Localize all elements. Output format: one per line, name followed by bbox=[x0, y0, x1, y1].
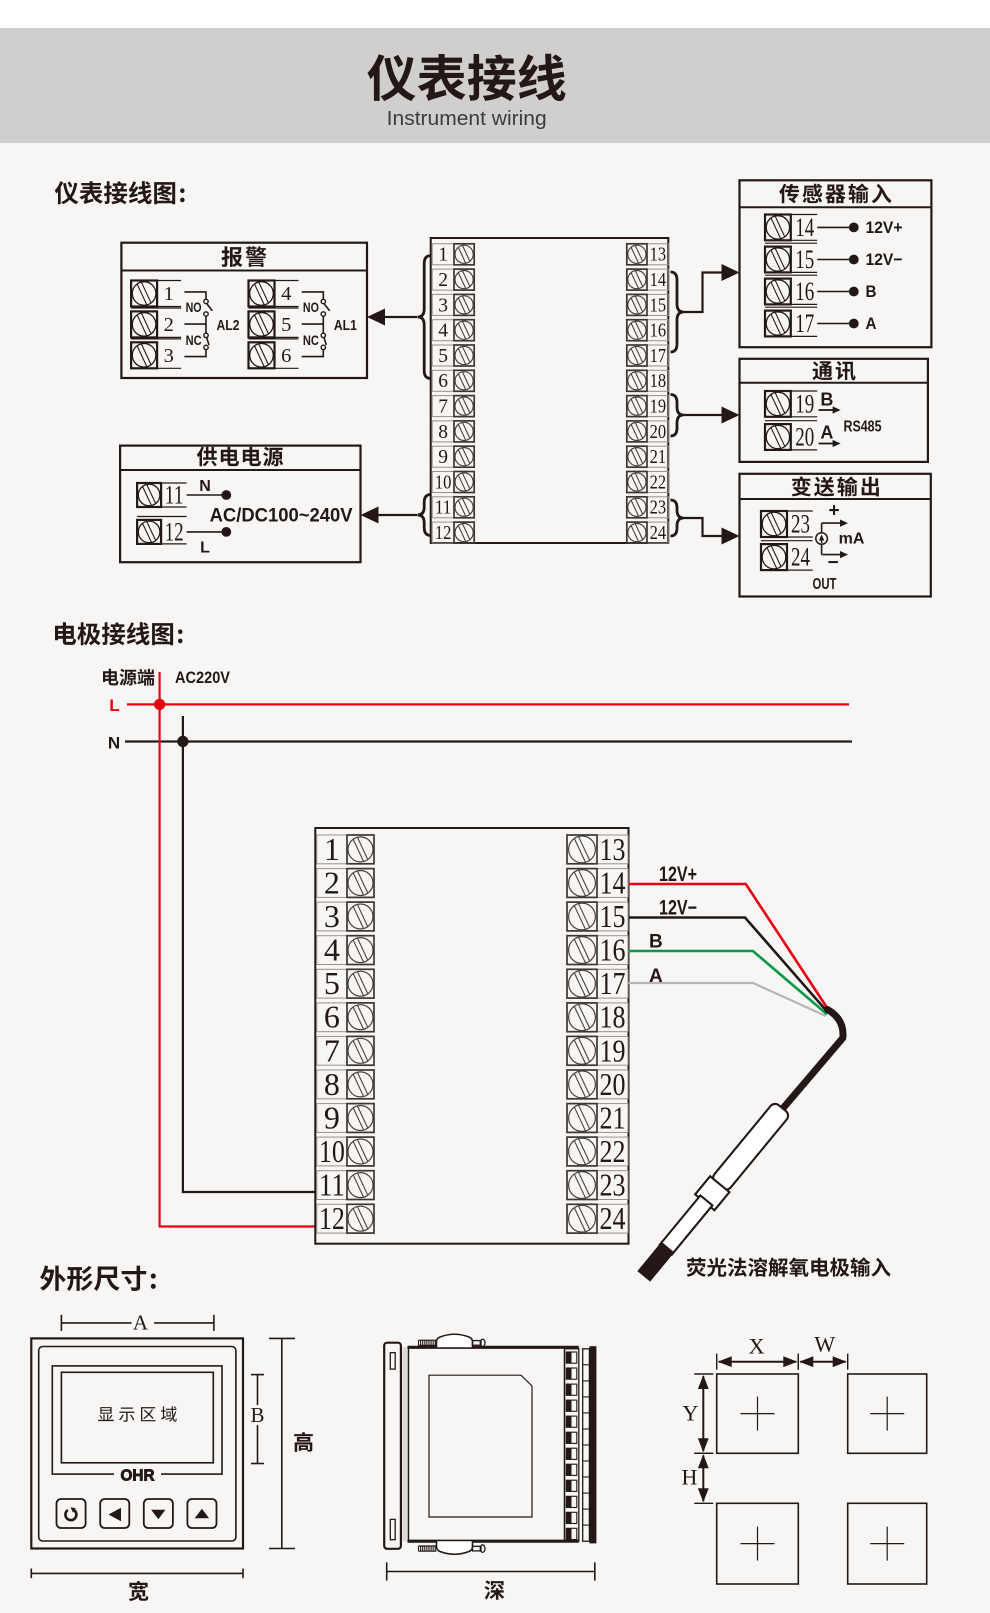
svg-text:20: 20 bbox=[795, 423, 814, 452]
svg-text:2: 2 bbox=[164, 314, 174, 336]
svg-text:6: 6 bbox=[281, 345, 291, 367]
svg-text:6: 6 bbox=[438, 371, 448, 392]
svg-text:AC220V: AC220V bbox=[175, 669, 230, 687]
svg-text:22: 22 bbox=[650, 472, 667, 493]
svg-text:A: A bbox=[820, 423, 833, 443]
svg-text:OHR: OHR bbox=[121, 1468, 155, 1485]
svg-text:2: 2 bbox=[324, 864, 340, 900]
svg-text:23: 23 bbox=[600, 1167, 626, 1203]
svg-text:1: 1 bbox=[438, 245, 448, 266]
svg-text:23: 23 bbox=[650, 498, 667, 519]
svg-text:2: 2 bbox=[438, 270, 448, 291]
svg-text:1: 1 bbox=[164, 283, 174, 305]
svg-text:3: 3 bbox=[438, 295, 448, 316]
svg-text:L: L bbox=[109, 696, 119, 715]
svg-text:mA: mA bbox=[839, 531, 865, 548]
svg-text:14: 14 bbox=[795, 213, 814, 242]
svg-text:5: 5 bbox=[324, 965, 340, 1001]
svg-text:17: 17 bbox=[650, 346, 667, 367]
svg-text:B: B bbox=[866, 282, 877, 301]
svg-text:12V+: 12V+ bbox=[659, 863, 697, 886]
svg-text:4: 4 bbox=[324, 932, 340, 968]
svg-text:11: 11 bbox=[319, 1167, 345, 1203]
svg-text:NO: NO bbox=[303, 300, 319, 315]
svg-text:Instrument wiring: Instrument wiring bbox=[387, 108, 547, 130]
svg-text:11: 11 bbox=[165, 481, 184, 510]
svg-text:22: 22 bbox=[600, 1133, 626, 1169]
svg-text:A: A bbox=[133, 1311, 149, 1335]
svg-text:15: 15 bbox=[600, 898, 626, 934]
svg-text:9: 9 bbox=[438, 447, 448, 468]
svg-text:N: N bbox=[108, 734, 120, 753]
svg-text:12V−: 12V− bbox=[659, 897, 697, 920]
svg-text:19: 19 bbox=[600, 1032, 626, 1068]
svg-text:13: 13 bbox=[650, 245, 667, 266]
svg-text:12: 12 bbox=[319, 1200, 345, 1236]
svg-text:NC: NC bbox=[186, 333, 202, 348]
svg-text:19: 19 bbox=[650, 397, 667, 418]
svg-text:A: A bbox=[649, 966, 663, 987]
svg-text:7: 7 bbox=[438, 397, 448, 418]
svg-text:6: 6 bbox=[324, 999, 340, 1035]
svg-text:L: L bbox=[200, 540, 210, 557]
svg-text:12V+: 12V+ bbox=[866, 218, 903, 237]
svg-text:N: N bbox=[199, 478, 211, 495]
svg-text:−: − bbox=[827, 553, 838, 574]
svg-text:18: 18 bbox=[600, 999, 626, 1035]
svg-text:12V−: 12V− bbox=[866, 250, 903, 269]
svg-text:B: B bbox=[820, 390, 833, 410]
svg-text:20: 20 bbox=[650, 422, 667, 443]
svg-text:12: 12 bbox=[435, 523, 452, 544]
svg-text:Y: Y bbox=[683, 1401, 699, 1426]
svg-text:NO: NO bbox=[186, 300, 202, 315]
svg-text:24: 24 bbox=[650, 523, 667, 544]
svg-text:19: 19 bbox=[795, 389, 814, 418]
svg-text:17: 17 bbox=[795, 309, 814, 338]
svg-text:RS485: RS485 bbox=[844, 419, 882, 436]
svg-text:21: 21 bbox=[600, 1099, 626, 1135]
svg-text:AL1: AL1 bbox=[334, 318, 357, 334]
svg-text:16: 16 bbox=[650, 321, 667, 342]
svg-text:21: 21 bbox=[650, 447, 667, 468]
svg-text:4: 4 bbox=[438, 321, 448, 342]
svg-text:OUT: OUT bbox=[813, 576, 837, 593]
svg-text:12: 12 bbox=[165, 517, 184, 546]
svg-text:10: 10 bbox=[435, 472, 452, 493]
svg-text:4: 4 bbox=[281, 283, 291, 305]
svg-text:3: 3 bbox=[164, 345, 174, 367]
svg-text:9: 9 bbox=[324, 1099, 340, 1135]
svg-text:8: 8 bbox=[438, 422, 448, 443]
svg-text:20: 20 bbox=[600, 1066, 626, 1102]
svg-text:B: B bbox=[649, 932, 663, 953]
svg-text:14: 14 bbox=[600, 864, 626, 900]
svg-text:13: 13 bbox=[600, 831, 626, 867]
svg-text:B: B bbox=[250, 1403, 264, 1427]
svg-text:5: 5 bbox=[438, 346, 448, 367]
svg-text:18: 18 bbox=[650, 371, 667, 392]
svg-text:A: A bbox=[866, 314, 877, 333]
svg-text:23: 23 bbox=[791, 510, 810, 539]
svg-text:15: 15 bbox=[650, 295, 667, 316]
svg-text:1: 1 bbox=[324, 831, 340, 867]
svg-text:8: 8 bbox=[324, 1066, 340, 1102]
svg-text:X: X bbox=[749, 1333, 765, 1358]
svg-text:24: 24 bbox=[791, 543, 810, 572]
svg-text:24: 24 bbox=[600, 1200, 626, 1236]
svg-text:7: 7 bbox=[324, 1032, 340, 1068]
svg-text:AC/DC100~240V: AC/DC100~240V bbox=[210, 506, 353, 527]
svg-text:17: 17 bbox=[600, 965, 626, 1001]
svg-text:5: 5 bbox=[281, 314, 291, 336]
svg-text:3: 3 bbox=[324, 898, 340, 934]
svg-text:AL2: AL2 bbox=[217, 318, 240, 334]
svg-text:11: 11 bbox=[435, 498, 452, 519]
svg-text:16: 16 bbox=[795, 277, 814, 306]
svg-text:10: 10 bbox=[319, 1133, 345, 1169]
svg-text:16: 16 bbox=[600, 932, 626, 968]
svg-text:NC: NC bbox=[303, 333, 319, 348]
svg-text:W: W bbox=[814, 1332, 835, 1357]
svg-text:+: + bbox=[828, 501, 839, 522]
svg-text:14: 14 bbox=[650, 270, 667, 291]
svg-text:H: H bbox=[682, 1465, 698, 1490]
svg-text:15: 15 bbox=[795, 245, 814, 274]
